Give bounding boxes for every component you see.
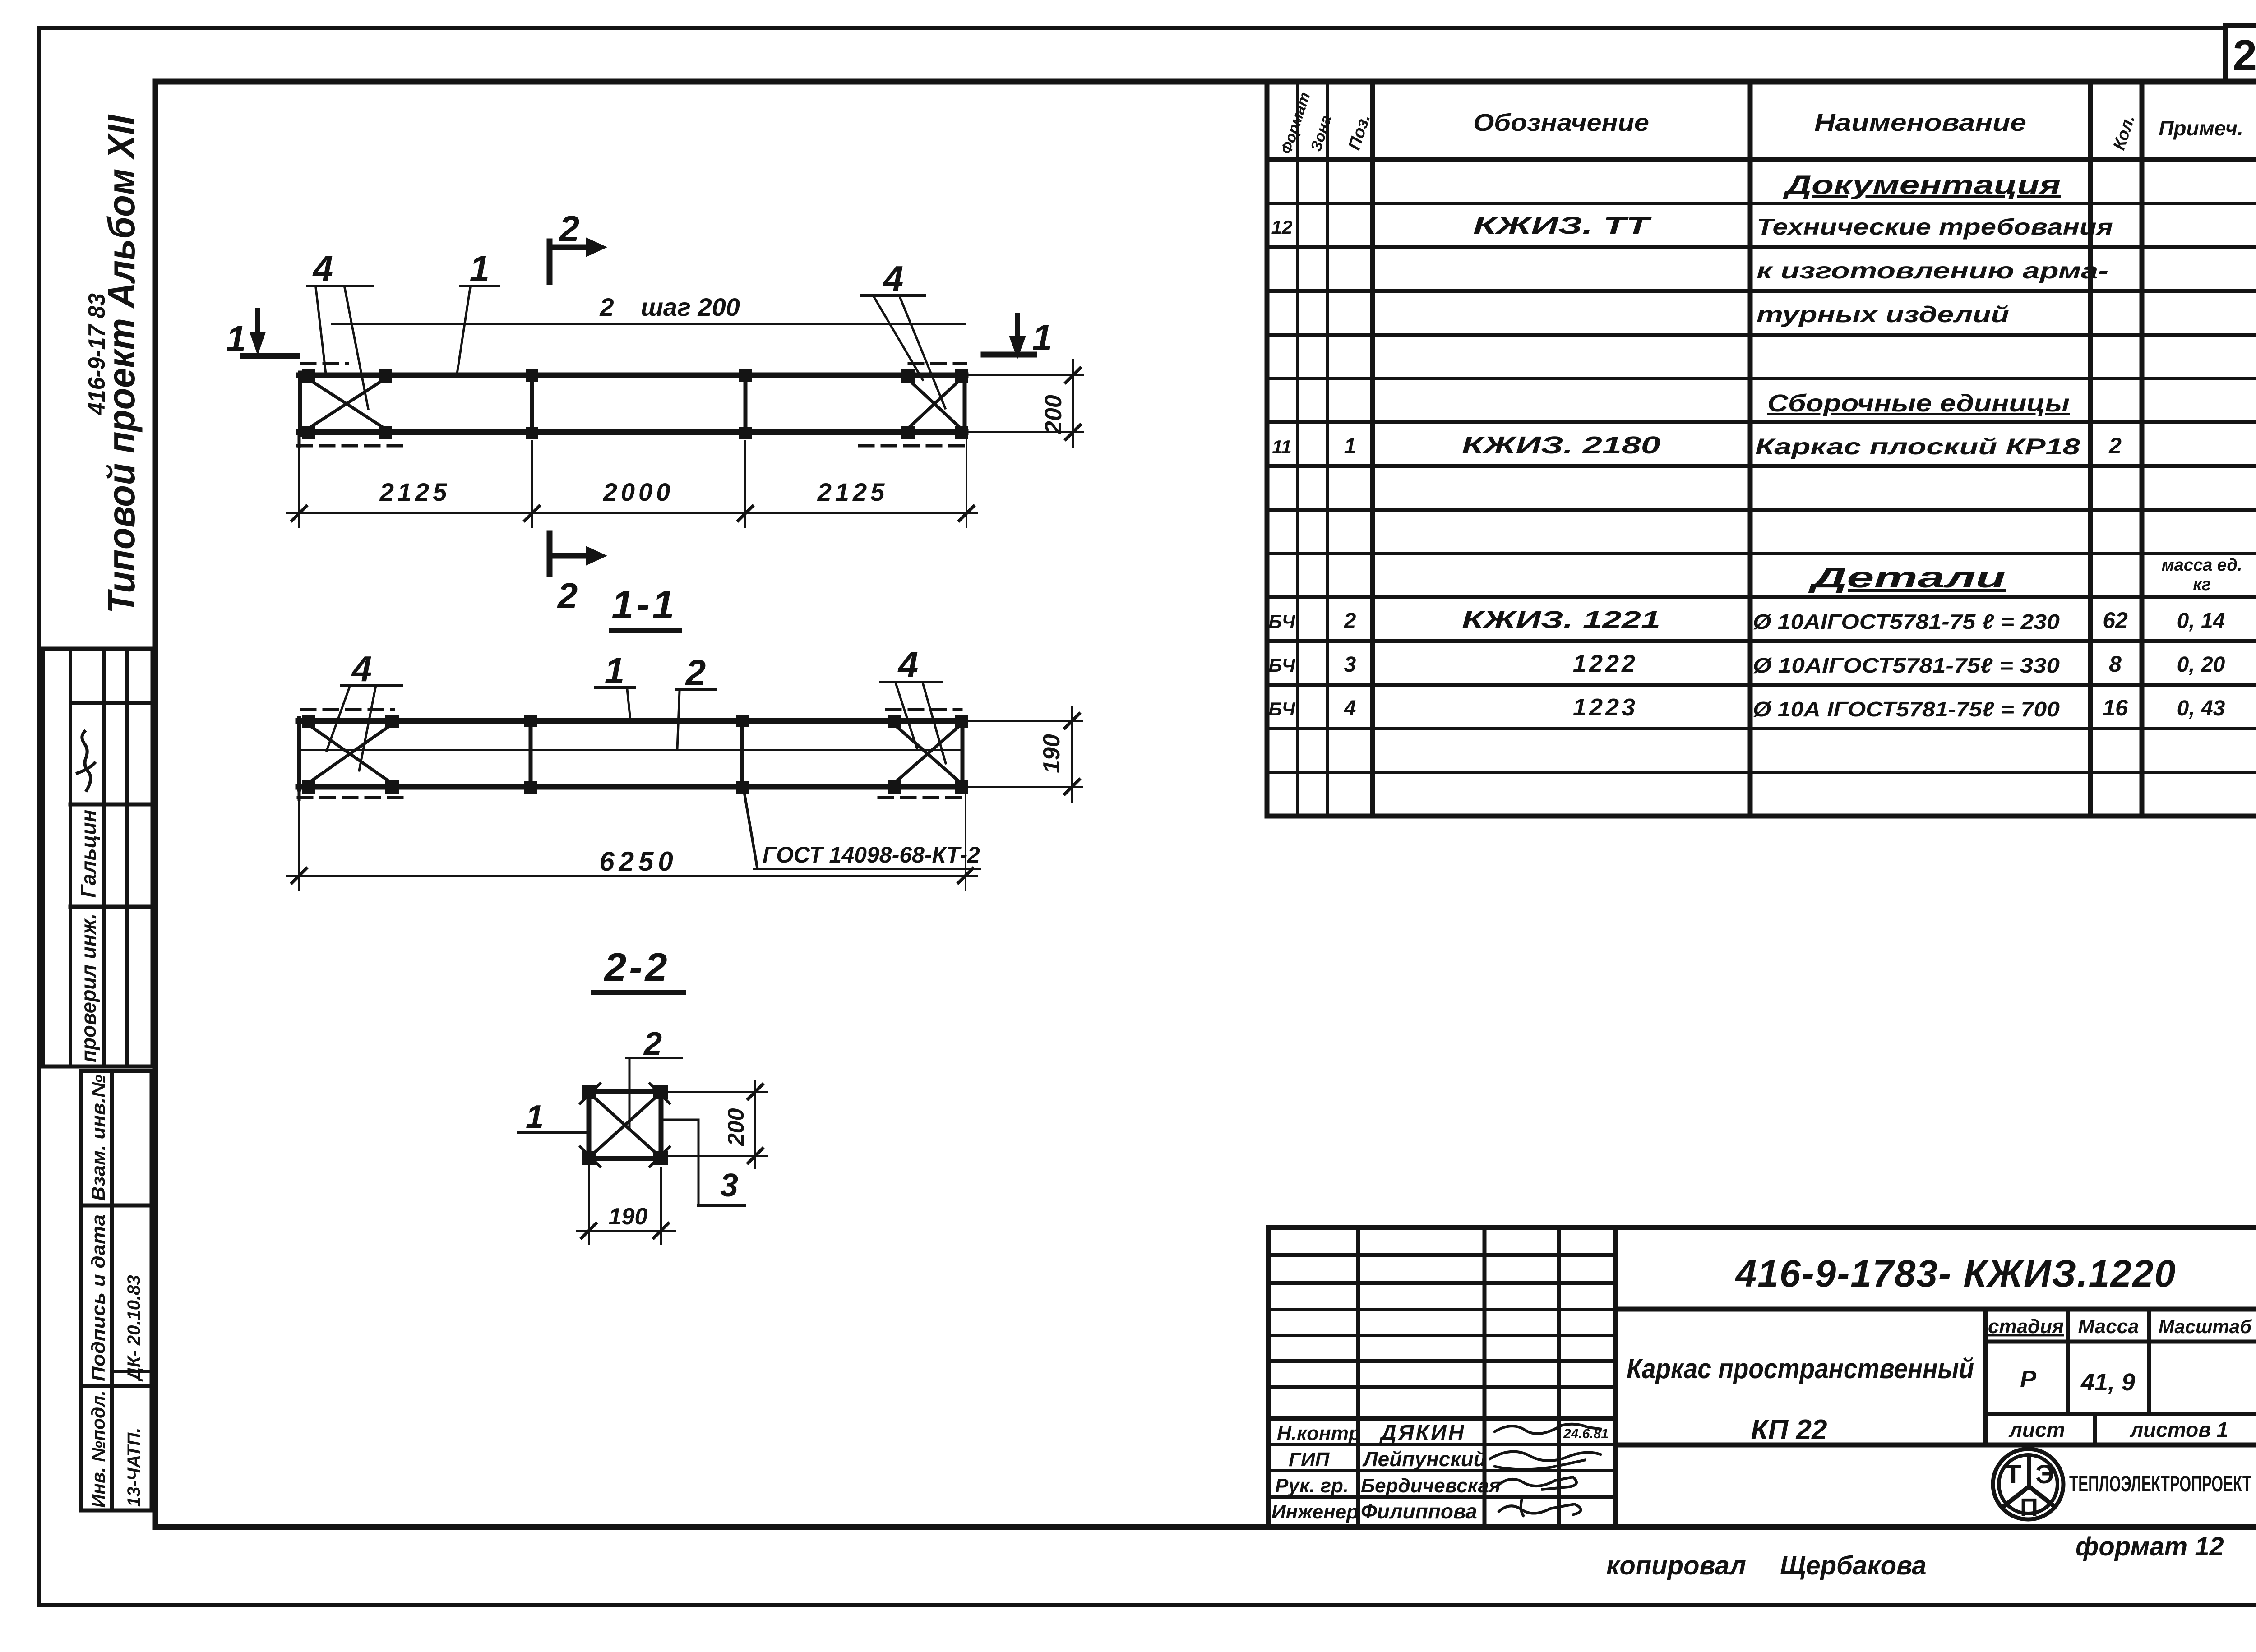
svg-text:4: 4	[1344, 697, 1356, 720]
svg-text:416-9-1783- КЖИЗ.1220: 416-9-1783- КЖИЗ.1220	[1734, 1252, 2176, 1295]
svg-text:Документация: Документация	[1782, 171, 2061, 200]
svg-text:0, 14: 0, 14	[2177, 609, 2225, 633]
svg-text:КЖИЗ. ТТ: КЖИЗ. ТТ	[1473, 212, 1652, 239]
svg-text:Т: Т	[2005, 1460, 2021, 1489]
svg-text:КЖИЗ. 2180: КЖИЗ. 2180	[1462, 432, 1660, 459]
svg-text:Р: Р	[2020, 1366, 2037, 1393]
svg-text:24.6.81: 24.6.81	[1563, 1426, 1609, 1441]
svg-text:2: 2	[559, 208, 580, 249]
svg-text:0, 43: 0, 43	[2177, 697, 2225, 720]
svg-text:Детали: Детали	[1808, 561, 2006, 594]
svg-text:ДЯКИН: ДЯКИН	[1379, 1421, 1465, 1445]
svg-text:3: 3	[720, 1167, 738, 1204]
svg-text:2: 2	[643, 1026, 662, 1062]
svg-text:1: 1	[1344, 434, 1356, 458]
svg-text:копировал: копировал	[1606, 1551, 1746, 1580]
svg-text:БЧ: БЧ	[1269, 611, 1296, 632]
svg-text:Филиппова: Филиппова	[1361, 1500, 1477, 1523]
svg-text:турных изделий: турных изделий	[1757, 302, 2009, 327]
svg-text:ГИП: ГИП	[1289, 1449, 1330, 1471]
svg-text:1222: 1222	[1573, 650, 1638, 677]
svg-text:Зона: Зона	[1307, 113, 1335, 154]
svg-text:16: 16	[2103, 695, 2128, 720]
svg-text:1-1: 1-1	[611, 582, 677, 627]
svg-text:25: 25	[2233, 31, 2256, 79]
svg-text:Ø 10А IГОСТ5781-75ℓ = 700: Ø 10А IГОСТ5781-75ℓ = 700	[1753, 697, 2060, 721]
svg-text:62: 62	[2103, 608, 2128, 633]
svg-text:8: 8	[2109, 651, 2122, 677]
svg-text:листов 1: листов 1	[2130, 1418, 2228, 1441]
svg-text:формат 12: формат 12	[2076, 1532, 2224, 1561]
svg-text:2125: 2125	[817, 478, 888, 506]
svg-text:2-2: 2-2	[603, 945, 670, 989]
svg-text:6250: 6250	[599, 846, 677, 877]
svg-text:Инженер: Инженер	[1271, 1501, 1359, 1523]
svg-text:Наименование: Наименование	[1814, 109, 2026, 136]
svg-text:1: 1	[526, 1099, 544, 1135]
svg-text:4: 4	[351, 649, 372, 689]
svg-text:Каркас плоский КР18: Каркас плоский КР18	[1755, 434, 2080, 459]
svg-text:4: 4	[883, 258, 904, 299]
svg-text:Бердичевская: Бердичевская	[1361, 1475, 1501, 1497]
svg-text:3: 3	[1344, 653, 1356, 677]
svg-text:БЧ: БЧ	[1269, 655, 1296, 676]
svg-text:лист: лист	[2008, 1418, 2065, 1441]
svg-text:2000: 2000	[603, 478, 674, 506]
svg-text:12: 12	[1271, 217, 1293, 238]
svg-text:проверил инж.: проверил инж.	[77, 914, 100, 1062]
svg-text:0, 20: 0, 20	[2177, 653, 2225, 677]
svg-text:200: 200	[723, 1108, 749, 1146]
svg-text:Масса: Масса	[2078, 1315, 2139, 1338]
svg-text:1: 1	[605, 651, 625, 691]
svg-text:190: 190	[609, 1204, 648, 1230]
svg-text:Э: Э	[2035, 1460, 2054, 1489]
svg-text:Технические требования: Технические требования	[1757, 214, 2113, 240]
svg-text:КП 22: КП 22	[1751, 1414, 1827, 1445]
svg-text:Взам. инв.№: Взам. инв.№	[88, 1075, 109, 1201]
svg-text:стадия: стадия	[1988, 1315, 2064, 1338]
svg-text:2: 2	[1344, 609, 1356, 633]
svg-text:2: 2	[2108, 433, 2122, 458]
svg-text:к изготовлению арма-: к изготовлению арма-	[1757, 258, 2108, 283]
svg-text:2: 2	[685, 652, 706, 692]
svg-text:Сборочные единицы: Сборочные единицы	[1767, 390, 2070, 417]
svg-text:ТЕПЛОЭЛЕКТРОПРОЕКТ: ТЕПЛОЭЛЕКТРОПРОЕКТ	[2069, 1471, 2251, 1496]
svg-text:1: 1	[1032, 317, 1053, 357]
svg-text:2: 2	[557, 576, 578, 616]
svg-text:ГОСТ 14098-68-КТ-2: ГОСТ 14098-68-КТ-2	[763, 842, 980, 868]
svg-text:Подпись и дата: Подпись и дата	[88, 1214, 109, 1381]
svg-text:2125: 2125	[379, 478, 451, 506]
svg-text:4: 4	[897, 644, 919, 684]
svg-text:Ø 10АIГОСТ5781-75ℓ = 330: Ø 10АIГОСТ5781-75ℓ = 330	[1753, 654, 2060, 677]
svg-text:2: 2	[599, 293, 614, 321]
svg-text:13-ЧАТП.: 13-ЧАТП.	[124, 1428, 144, 1507]
svg-text:41, 9: 41, 9	[2080, 1369, 2135, 1396]
svg-text:Поз.: Поз.	[1345, 112, 1374, 152]
svg-text:Обозначение: Обозначение	[1473, 109, 1649, 136]
svg-text:190: 190	[1039, 734, 1065, 773]
svg-text:Н.контр: Н.контр	[1277, 1422, 1361, 1444]
svg-text:11: 11	[1272, 436, 1292, 457]
svg-text:4: 4	[312, 248, 333, 288]
svg-text:1223: 1223	[1573, 694, 1638, 721]
svg-text:200: 200	[1040, 395, 1067, 434]
svg-text:Масштаб: Масштаб	[2159, 1316, 2252, 1337]
svg-text:Кол.: Кол.	[2110, 112, 2139, 152]
svg-text:Гальцин: Гальцин	[77, 810, 100, 898]
svg-text:Примеч.: Примеч.	[2159, 116, 2243, 140]
svg-text:Щербакова: Щербакова	[1780, 1551, 1927, 1580]
svg-text:Лейпунский: Лейпунский	[1362, 1447, 1486, 1471]
svg-text:БЧ: БЧ	[1269, 698, 1296, 720]
svg-text:1: 1	[226, 318, 246, 359]
svg-text:КЖИЗ. 1221: КЖИЗ. 1221	[1462, 606, 1660, 633]
svg-text:Инв. №подл.: Инв. №подл.	[88, 1390, 109, 1508]
svg-text:масса ед.: масса ед.	[2162, 556, 2242, 575]
svg-text:кг: кг	[2193, 575, 2211, 594]
svg-text:416-9-17 83: 416-9-17 83	[84, 293, 110, 415]
svg-text:П: П	[2020, 1493, 2038, 1521]
svg-text:шаг 200: шаг 200	[641, 293, 740, 321]
svg-text:ДК- 20.10.83: ДК- 20.10.83	[124, 1275, 144, 1382]
svg-text:1: 1	[470, 248, 490, 288]
svg-text:Ø 10АIГОСТ5781-75 ℓ = 230: Ø 10АIГОСТ5781-75 ℓ = 230	[1753, 610, 2060, 633]
svg-text:Каркас пространственный: Каркас пространственный	[1627, 1353, 1974, 1384]
svg-text:Рук. гр.: Рук. гр.	[1275, 1475, 1349, 1497]
